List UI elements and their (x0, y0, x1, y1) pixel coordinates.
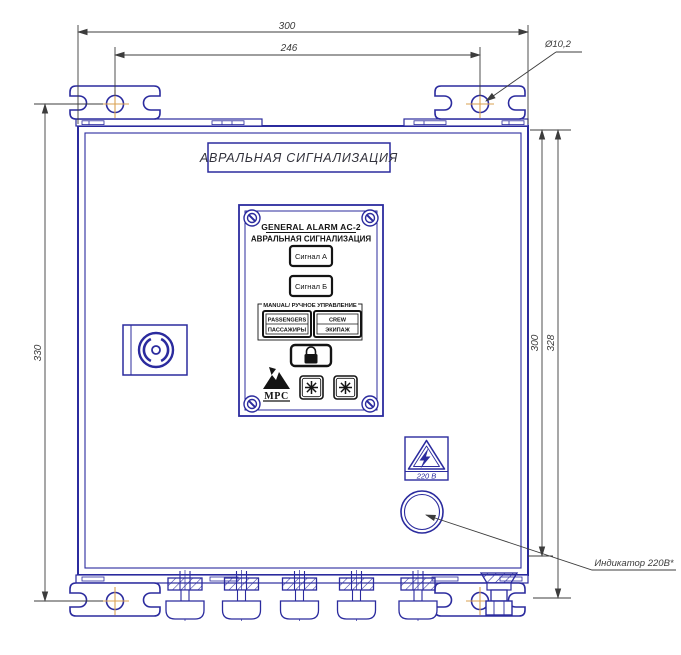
top-flange-strips (76, 119, 528, 126)
mpc-logo-text: МРС (264, 391, 288, 402)
dim-left-height-value: 330 (33, 344, 44, 361)
snowflake-icon (305, 381, 318, 394)
cable-gland (338, 570, 376, 621)
key-lock-plate (123, 325, 187, 375)
cable-gland (281, 570, 319, 621)
control-panel: GENERAL ALARM AC-2 АВРАЛЬНАЯ СИГНАЛИЗАЦИ… (239, 205, 383, 416)
snowflake-icon (339, 381, 352, 394)
dimension-hole-span: 246 (115, 43, 480, 96)
signal-b-label: Сигнал Б (295, 282, 327, 291)
screw-icon (244, 210, 260, 226)
screw-icon (244, 396, 260, 412)
voltage-label: 220 В (416, 472, 437, 481)
signal-a-label: Сигнал А (295, 252, 327, 261)
panel-title-ru: АВРАЛЬНАЯ СИГНАЛИЗАЦИЯ (251, 235, 371, 244)
title-plate-text: АВРАЛЬНАЯ СИГНАЛИЗАЦИЯ (199, 151, 398, 165)
dim-top-width-value: 300 (279, 21, 296, 32)
technical-drawing-alarm-panel: АВРАЛЬНАЯ СИГНАЛИЗАЦИЯ GENERAL ALARM AC (0, 0, 681, 655)
cable-gland (223, 570, 261, 621)
dimension-right-heights: 300 328 (528, 130, 571, 598)
manual-group-label: MANUAL/ РУЧНОЕ УПРАВЛЕНИЕ (263, 303, 357, 309)
crew-label-en: CREW (329, 318, 347, 324)
drawing-svg: АВРАЛЬНАЯ СИГНАЛИЗАЦИЯ GENERAL ALARM AC (0, 0, 681, 655)
screw-icon (362, 396, 378, 412)
screw-icon (362, 210, 378, 226)
hole-diameter-text: Ø10,2 (544, 39, 572, 50)
panel-title-en: GENERAL ALARM AC-2 (261, 222, 361, 232)
cable-gland (166, 570, 204, 621)
dim-right-outer-value: 328 (546, 334, 557, 351)
mounting-bracket-bottom-left (70, 583, 160, 616)
crew-label-ru: ЭКИПАЖ (325, 328, 350, 334)
voltage-warning-plate: 220 В (405, 437, 448, 481)
cable-gland (399, 570, 437, 621)
passengers-label-en: PASSENGERS (268, 318, 307, 324)
passengers-label-ru: ПАССАЖИРЫ (268, 328, 307, 334)
dim-hole-span-value: 246 (280, 43, 298, 54)
indicator-note-text: Индикатор 220В* (594, 558, 674, 569)
title-plate: АВРАЛЬНАЯ СИГНАЛИЗАЦИЯ (199, 143, 398, 172)
dim-right-inner-value: 300 (530, 334, 541, 351)
